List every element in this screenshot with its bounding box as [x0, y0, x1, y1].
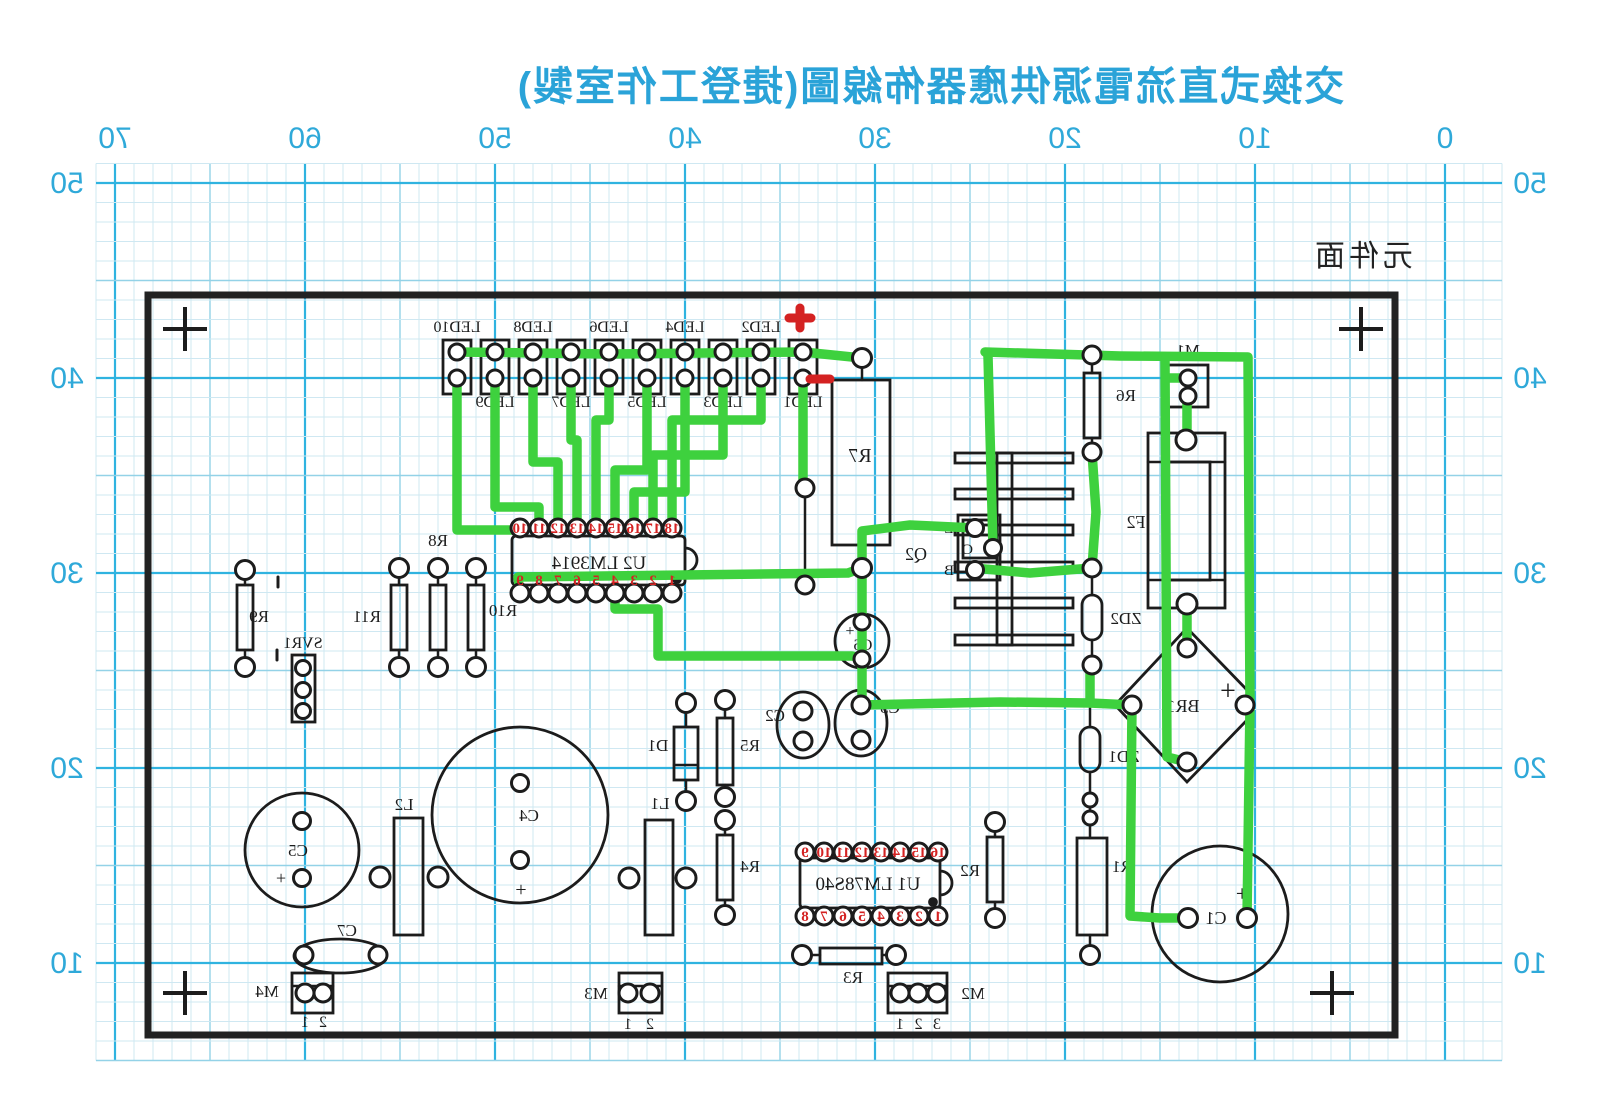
- svg-text:F2: F2: [1126, 512, 1145, 532]
- pad-led10: [449, 344, 465, 360]
- trace-18: [1092, 452, 1096, 568]
- svg-text:+: +: [845, 623, 854, 640]
- pad-br1: [1178, 753, 1196, 771]
- svg-text:C: C: [963, 542, 973, 558]
- pad-l1: [619, 868, 639, 888]
- svg-text:C2: C2: [765, 706, 785, 725]
- pad-q2: [985, 540, 1002, 557]
- svg-text:50: 50: [478, 122, 511, 155]
- pad-f2: [1176, 430, 1196, 450]
- svg-text:R9: R9: [249, 607, 269, 626]
- svg-text:20: 20: [50, 752, 83, 785]
- svg-text:LED4: LED4: [665, 319, 704, 336]
- pad-led2: [753, 370, 769, 386]
- pad-m3: [619, 984, 637, 1002]
- pad-jp1: [796, 479, 814, 497]
- svg-text:M2: M2: [961, 984, 985, 1003]
- svg-text:30: 30: [858, 122, 891, 155]
- svg-text:5: 5: [592, 573, 600, 589]
- pad-r3: [887, 946, 906, 965]
- svg-text:10: 10: [50, 947, 83, 980]
- pad-r8: [429, 658, 448, 677]
- svg-text:+: +: [1220, 676, 1236, 707]
- pad-br1: [1123, 696, 1141, 714]
- svg-text:R5: R5: [740, 736, 760, 755]
- pad-m4: [296, 984, 314, 1002]
- svg-text:3: 3: [933, 1016, 941, 1033]
- pad-svr1: [296, 704, 311, 719]
- svg-text:SVR1: SVR1: [283, 635, 322, 652]
- svg-text:D1: D1: [648, 736, 669, 755]
- pad-br1: [1178, 639, 1196, 657]
- svg-text:18: 18: [665, 521, 680, 537]
- svg-text:2: 2: [915, 909, 923, 925]
- svg-text:1: 1: [896, 1016, 904, 1033]
- pad-c7: [369, 946, 387, 964]
- svg-text:60: 60: [288, 122, 321, 155]
- svg-text:LED6: LED6: [589, 319, 628, 336]
- pad-r2: [986, 909, 1005, 928]
- svg-text:10: 10: [1238, 122, 1271, 155]
- svg-text:14: 14: [892, 845, 908, 861]
- pad-r9: [236, 658, 255, 677]
- pad-led4: [677, 370, 693, 386]
- svg-text:6: 6: [839, 909, 847, 925]
- pad-led5: [639, 370, 655, 386]
- component-l1: L1: [645, 794, 673, 935]
- svg-text:C5: C5: [288, 841, 308, 860]
- svg-text:B: B: [944, 563, 954, 579]
- pad-zd2: [1083, 656, 1101, 674]
- pad-led3: [715, 344, 731, 360]
- pad-c5: [294, 813, 311, 830]
- svg-text:+: +: [515, 879, 526, 901]
- diagram-canvas: 01020304050607050504040303020201010 LED1…: [0, 0, 1600, 1112]
- svg-text:LED10: LED10: [433, 319, 480, 336]
- svg-text:40: 40: [50, 362, 83, 395]
- pad-c1: [1238, 909, 1257, 928]
- svg-text:M3: M3: [584, 984, 608, 1003]
- component-zd2: ZD2: [1082, 577, 1142, 656]
- svg-text:L2: L2: [395, 795, 414, 814]
- pad-led3: [715, 370, 731, 386]
- pad-c7: [295, 946, 313, 964]
- svg-text:17: 17: [645, 521, 661, 537]
- svg-text:30: 30: [50, 557, 83, 590]
- component-r3: R3: [810, 948, 888, 987]
- pad-br1: [1236, 696, 1254, 714]
- pad-r6: [1083, 346, 1101, 364]
- component-r11: R11: [353, 577, 407, 658]
- pad-led9: [487, 370, 503, 386]
- pad-c3: [852, 731, 870, 749]
- svg-text:LED2: LED2: [741, 319, 780, 336]
- svg-text:9: 9: [516, 573, 524, 589]
- pad-zd1: [1083, 811, 1097, 825]
- pad-led1: [795, 344, 811, 360]
- trace-5: [596, 378, 609, 530]
- svg-text:+: +: [276, 868, 286, 888]
- pad-r6: [1083, 443, 1101, 461]
- pad-c6: [854, 614, 870, 630]
- svg-text:4: 4: [877, 909, 885, 925]
- svg-text:1: 1: [624, 1016, 632, 1033]
- svg-text:12: 12: [855, 845, 870, 861]
- svg-text:R11: R11: [353, 607, 381, 626]
- pad-c1: [1179, 909, 1198, 928]
- svg-text:16: 16: [930, 845, 946, 861]
- pad-r8: [429, 559, 448, 578]
- pad-r11: [390, 658, 409, 677]
- svg-text:1: 1: [934, 909, 942, 925]
- svg-text:3: 3: [896, 909, 904, 925]
- pad-l2: [370, 867, 390, 887]
- pad-q2: [967, 520, 984, 537]
- svg-text:6: 6: [573, 573, 581, 589]
- pad-zd2: [1083, 559, 1101, 577]
- svg-text:11: 11: [836, 845, 850, 861]
- pad-f2: [1177, 594, 1197, 614]
- svg-text:2: 2: [319, 1014, 327, 1031]
- pad-l2: [428, 867, 448, 887]
- svg-text:7: 7: [820, 909, 828, 925]
- svg-text:20: 20: [1048, 122, 1081, 155]
- svg-text:C1: C1: [1205, 908, 1226, 928]
- svg-text:R2: R2: [960, 861, 980, 880]
- pad-r10: [467, 658, 486, 677]
- pad-r4: [716, 906, 735, 925]
- pad-m2: [891, 984, 909, 1002]
- pad-d1: [677, 694, 696, 713]
- pad-r7: [853, 559, 872, 578]
- component-r9: R9: [237, 578, 269, 658]
- pad-r9: [236, 561, 255, 580]
- pad-m1: [1180, 388, 1196, 404]
- pad-c6: [854, 651, 870, 667]
- component-r10: R10: [468, 577, 517, 658]
- svg-text:50: 50: [1513, 167, 1546, 200]
- component-r2: R2: [960, 831, 1003, 909]
- page-title: 交換式直流電源供應器佈線圖(捷登工作室製): [516, 64, 1345, 109]
- pad-m1: [1180, 370, 1196, 386]
- pad-led6: [601, 344, 617, 360]
- pad-c3: [852, 696, 870, 714]
- corner-label: 元件面: [1311, 240, 1413, 273]
- svg-text:R8: R8: [428, 531, 448, 550]
- svg-text:13: 13: [874, 845, 889, 861]
- pad-m2: [928, 984, 946, 1002]
- pad-c5: [294, 870, 311, 887]
- pad-svr1: [296, 661, 311, 676]
- pad-d1: [677, 792, 696, 811]
- component-r6: R6: [1084, 364, 1136, 444]
- svg-text:C7: C7: [337, 921, 357, 940]
- svg-text:1: 1: [668, 573, 676, 589]
- svg-text:15: 15: [912, 845, 927, 861]
- pad-led7: [563, 344, 579, 360]
- pad-c4: [512, 852, 529, 869]
- svg-text:10: 10: [817, 845, 832, 861]
- pad-m2: [909, 984, 927, 1002]
- pad-r7: [853, 349, 872, 368]
- svg-text:10: 10: [513, 521, 528, 537]
- svg-text:L1: L1: [651, 794, 670, 813]
- pcb-wiring-diagram: 01020304050607050504040303020201010 LED1…: [0, 0, 1600, 1112]
- pad-svr1: [296, 683, 311, 698]
- pad-r10: [467, 559, 486, 578]
- pad-zd1: [1083, 793, 1097, 807]
- svg-text:LED8: LED8: [513, 319, 552, 336]
- pad-c4: [512, 775, 529, 792]
- pad-led4: [677, 344, 693, 360]
- pad-c2: [794, 732, 812, 750]
- pad-r4: [716, 811, 735, 830]
- svg-text:20: 20: [1513, 752, 1546, 785]
- component-d1: D1: [648, 712, 698, 792]
- svg-text:13: 13: [570, 521, 585, 537]
- pad-r1: [1081, 946, 1100, 965]
- pad-r5: [716, 691, 735, 710]
- svg-text:30: 30: [1513, 557, 1546, 590]
- svg-text:1: 1: [301, 1014, 309, 1031]
- svg-text:11: 11: [532, 521, 546, 537]
- pad-l1: [676, 868, 696, 888]
- pad-led2: [753, 344, 769, 360]
- svg-text:2: 2: [646, 1016, 654, 1033]
- component-c4: C4+: [432, 727, 608, 903]
- pad-led5: [639, 344, 655, 360]
- pad-jp1: [796, 576, 814, 594]
- pad-led9: [487, 344, 503, 360]
- svg-text:5: 5: [858, 909, 866, 925]
- svg-text:R3: R3: [843, 968, 863, 987]
- pad-r5: [716, 788, 735, 807]
- pad-led8: [525, 370, 541, 386]
- pad-r11: [390, 559, 409, 578]
- svg-text:U1 LM78S40: U1 LM78S40: [815, 874, 920, 895]
- svg-text:70: 70: [98, 122, 131, 155]
- svg-text:50: 50: [50, 167, 83, 200]
- svg-text:8: 8: [801, 909, 809, 925]
- trace-17: [973, 568, 1092, 573]
- svg-text:C4: C4: [519, 806, 539, 825]
- pad-led8: [525, 344, 541, 360]
- svg-text:2: 2: [649, 573, 657, 589]
- svg-text:M4: M4: [255, 982, 279, 1001]
- svg-text:2: 2: [915, 1016, 923, 1033]
- pad-q2: [967, 562, 984, 579]
- svg-text:3: 3: [630, 573, 638, 589]
- svg-text:0: 0: [1437, 122, 1454, 155]
- svg-text:9: 9: [801, 845, 809, 861]
- svg-text:14: 14: [588, 521, 604, 537]
- pad-r2: [986, 813, 1005, 832]
- svg-text:10: 10: [1513, 947, 1546, 980]
- pad-c2: [794, 702, 812, 720]
- svg-text:4: 4: [611, 573, 619, 589]
- svg-text:12: 12: [551, 521, 566, 537]
- svg-text:7: 7: [554, 573, 562, 589]
- svg-text:R7: R7: [848, 445, 871, 467]
- pad-led10: [449, 370, 465, 386]
- pad-led7: [563, 370, 579, 386]
- svg-text:16: 16: [626, 521, 642, 537]
- svg-text:U2 LM3914: U2 LM3914: [551, 553, 646, 574]
- pad-r3: [793, 946, 812, 965]
- svg-text:ZD2: ZD2: [1110, 609, 1141, 628]
- svg-text:8: 8: [535, 573, 543, 589]
- component-ticks: [277, 577, 278, 660]
- svg-text:R10: R10: [489, 601, 517, 620]
- svg-text:40: 40: [668, 122, 701, 155]
- svg-text:40: 40: [1513, 362, 1546, 395]
- pad-m4: [314, 984, 332, 1002]
- component-r1: R1: [1077, 838, 1132, 946]
- svg-text:R4: R4: [740, 857, 760, 876]
- svg-text:15: 15: [608, 521, 623, 537]
- pad-m3: [641, 984, 659, 1002]
- svg-text:Q2: Q2: [905, 544, 927, 564]
- svg-text:R6: R6: [1116, 386, 1136, 405]
- pad-led6: [601, 370, 617, 386]
- trace-20: [988, 356, 993, 548]
- component-c5: C5+: [245, 793, 359, 907]
